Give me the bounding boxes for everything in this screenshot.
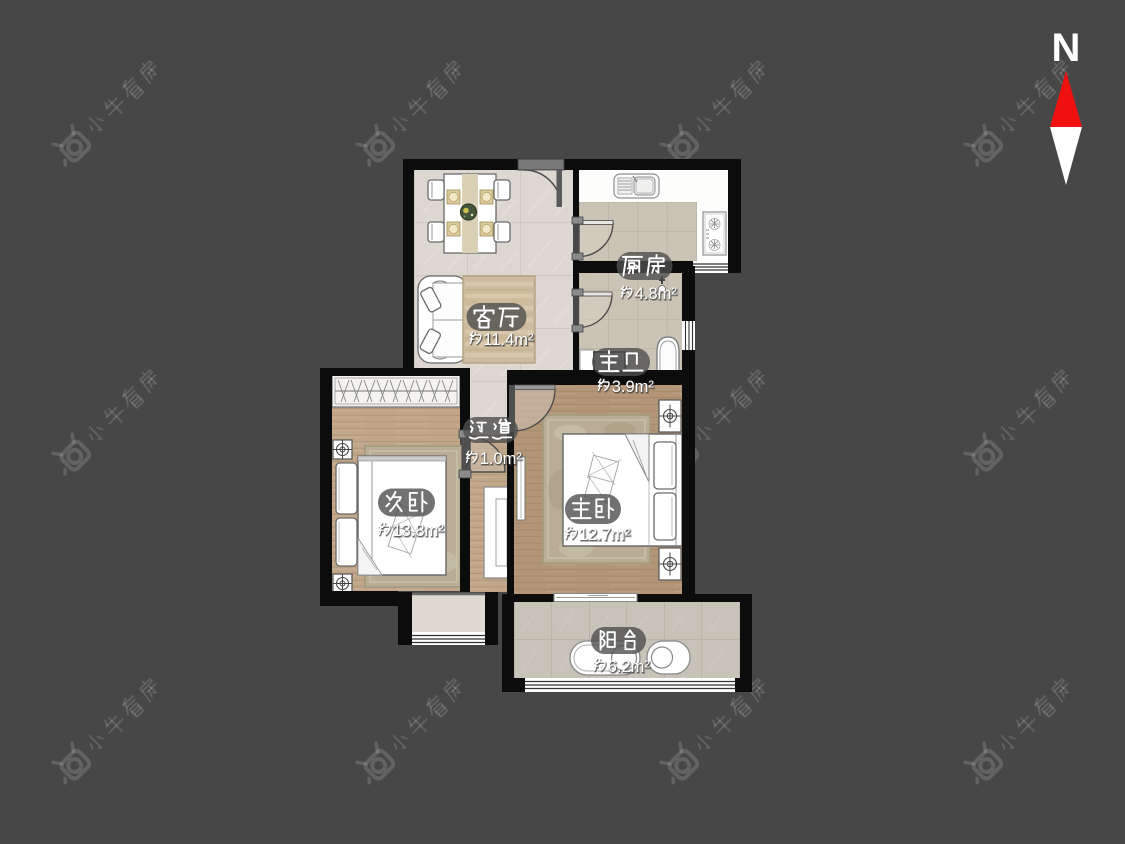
svg-text:11.4m²: 11.4m² <box>483 331 534 349</box>
svg-text:3.9m²: 3.9m² <box>612 378 655 396</box>
svg-text:6.2m²: 6.2m² <box>608 658 651 676</box>
svg-text:N: N <box>1052 26 1081 70</box>
svg-text:1.0m²: 1.0m² <box>480 450 523 468</box>
svg-text:13.8m²: 13.8m² <box>392 522 444 540</box>
svg-text:12.7m²: 12.7m² <box>579 526 631 544</box>
svg-text:4.8m²: 4.8m² <box>635 285 678 303</box>
